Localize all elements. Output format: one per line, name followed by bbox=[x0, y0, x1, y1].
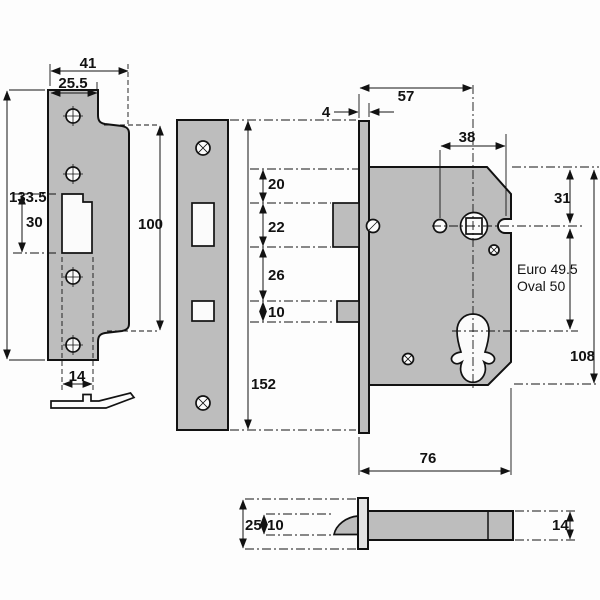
cylinder-note-line2: Oval 50 bbox=[517, 278, 565, 294]
case-screw-upper bbox=[489, 245, 499, 255]
dim-bottom-latch-thickness: 10 bbox=[264, 514, 333, 535]
latch-bolt-profile bbox=[334, 516, 358, 535]
dim-forend-thickness: 4 bbox=[322, 103, 394, 121]
dimension-label: 41 bbox=[80, 55, 97, 72]
dimension-label: 22 bbox=[268, 219, 285, 236]
dimension-label: 100 bbox=[138, 216, 163, 233]
forend-deadbolt-cutout bbox=[192, 301, 214, 321]
dimension-label: 26 bbox=[268, 267, 285, 284]
drawing-stage: 41 25.5 133.5 30 100 14 bbox=[0, 0, 600, 600]
dimension-label: 10 bbox=[268, 304, 285, 321]
forend-plate bbox=[177, 120, 228, 430]
dim-cylinder-centres: Euro 49.5 Oval 50 bbox=[517, 229, 578, 329]
forend-latch-cutout bbox=[192, 203, 214, 246]
dimension-label: 14 bbox=[69, 368, 86, 385]
dimension-label: 31 bbox=[554, 190, 571, 207]
dim-forend-length: 152 bbox=[230, 120, 356, 430]
dimension-label: 38 bbox=[459, 129, 476, 146]
lock-case-view bbox=[333, 121, 511, 433]
dim-backset: 57 bbox=[359, 88, 472, 118]
case-profile bbox=[368, 511, 513, 540]
dimension-label: 10 bbox=[267, 517, 284, 534]
dim-top-to-follower: 31 bbox=[554, 170, 571, 223]
dimension-label: 20 bbox=[268, 176, 285, 193]
strike-plate-latch-cutout bbox=[62, 194, 92, 253]
dimension-label: 30 bbox=[26, 214, 43, 231]
forend-front-view bbox=[177, 120, 228, 430]
dimension-label: 108 bbox=[570, 348, 595, 365]
latch-bolt bbox=[333, 203, 359, 247]
strike-plate-front-view bbox=[48, 90, 129, 360]
strike-plate-side-view bbox=[51, 393, 134, 408]
dim-case-depth: 76 bbox=[359, 388, 511, 475]
dimension-label: 25.5 bbox=[58, 75, 87, 92]
dimension-label: 4 bbox=[322, 104, 331, 121]
forend-screw-bottom bbox=[196, 396, 210, 410]
dimension-label: 14 bbox=[552, 517, 569, 534]
dimension-label: 152 bbox=[251, 376, 276, 393]
case-screw-lower bbox=[403, 354, 414, 365]
technical-drawing: 41 25.5 133.5 30 100 14 bbox=[0, 0, 600, 600]
forend-fixing-screw bbox=[367, 220, 380, 233]
lock-bottom-view bbox=[334, 498, 513, 549]
dimension-label: 76 bbox=[420, 450, 437, 467]
dimension-label: 57 bbox=[398, 88, 415, 105]
lock-forend-edge bbox=[359, 121, 369, 433]
dim-bottom-case-thickness: 14 bbox=[515, 511, 576, 540]
dimension-label: 25 bbox=[245, 517, 262, 534]
forend-profile bbox=[358, 498, 368, 549]
dimension-label: 133.5 bbox=[9, 189, 47, 206]
deadbolt bbox=[337, 301, 359, 322]
cylinder-note-line1: Euro 49.5 bbox=[517, 261, 578, 277]
forend-screw-top bbox=[196, 141, 210, 155]
